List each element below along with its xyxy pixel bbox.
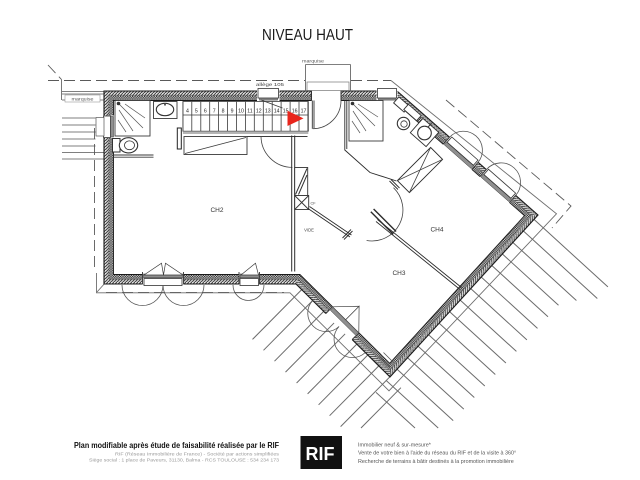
svg-text:10: 10 bbox=[238, 109, 244, 115]
svg-text:14: 14 bbox=[274, 109, 280, 115]
svg-text:7: 7 bbox=[213, 109, 216, 115]
svg-text:Recherche de terrains à bâtir: Recherche de terrains à bâtir destinés à… bbox=[358, 459, 514, 465]
svg-text:NIVEAU HAUT: NIVEAU HAUT bbox=[262, 27, 353, 44]
svg-text:marquise: marquise bbox=[72, 96, 95, 101]
svg-text:Vente de votre bien à l'aide d: Vente de votre bien à l'aide du réseau d… bbox=[358, 451, 516, 457]
svg-text:9: 9 bbox=[231, 109, 234, 115]
svg-text:Plan modifiable après étude de: Plan modifiable après étude de faisabili… bbox=[74, 441, 279, 450]
svg-text:RIF: RIF bbox=[306, 444, 335, 464]
svg-text:Immobilier neuf & sur-mesure*: Immobilier neuf & sur-mesure* bbox=[358, 443, 432, 449]
svg-text:CH4: CH4 bbox=[430, 227, 443, 234]
svg-text:CH2: CH2 bbox=[210, 207, 223, 214]
svg-text:17: 17 bbox=[301, 109, 307, 115]
svg-text:marquise: marquise bbox=[302, 59, 325, 64]
svg-text:Siège social : 1 place de Pave: Siège social : 1 place de Paveurs, 31130… bbox=[89, 457, 279, 463]
svg-text:5: 5 bbox=[195, 109, 198, 115]
svg-text:CH3: CH3 bbox=[392, 270, 405, 277]
svg-text:RIF (Réseau Immobilière de Fra: RIF (Réseau Immobilière de France) - Soc… bbox=[115, 451, 280, 457]
svg-text:VIDE: VIDE bbox=[304, 228, 314, 233]
svg-text:6: 6 bbox=[204, 109, 207, 115]
svg-text:CF: CF bbox=[311, 202, 317, 206]
svg-text:12: 12 bbox=[256, 109, 262, 115]
svg-text:11: 11 bbox=[247, 109, 252, 115]
svg-text:allège 105: allège 105 bbox=[256, 82, 285, 87]
svg-text:4: 4 bbox=[186, 109, 189, 115]
svg-text:8: 8 bbox=[222, 109, 225, 115]
svg-text:13: 13 bbox=[265, 109, 271, 115]
